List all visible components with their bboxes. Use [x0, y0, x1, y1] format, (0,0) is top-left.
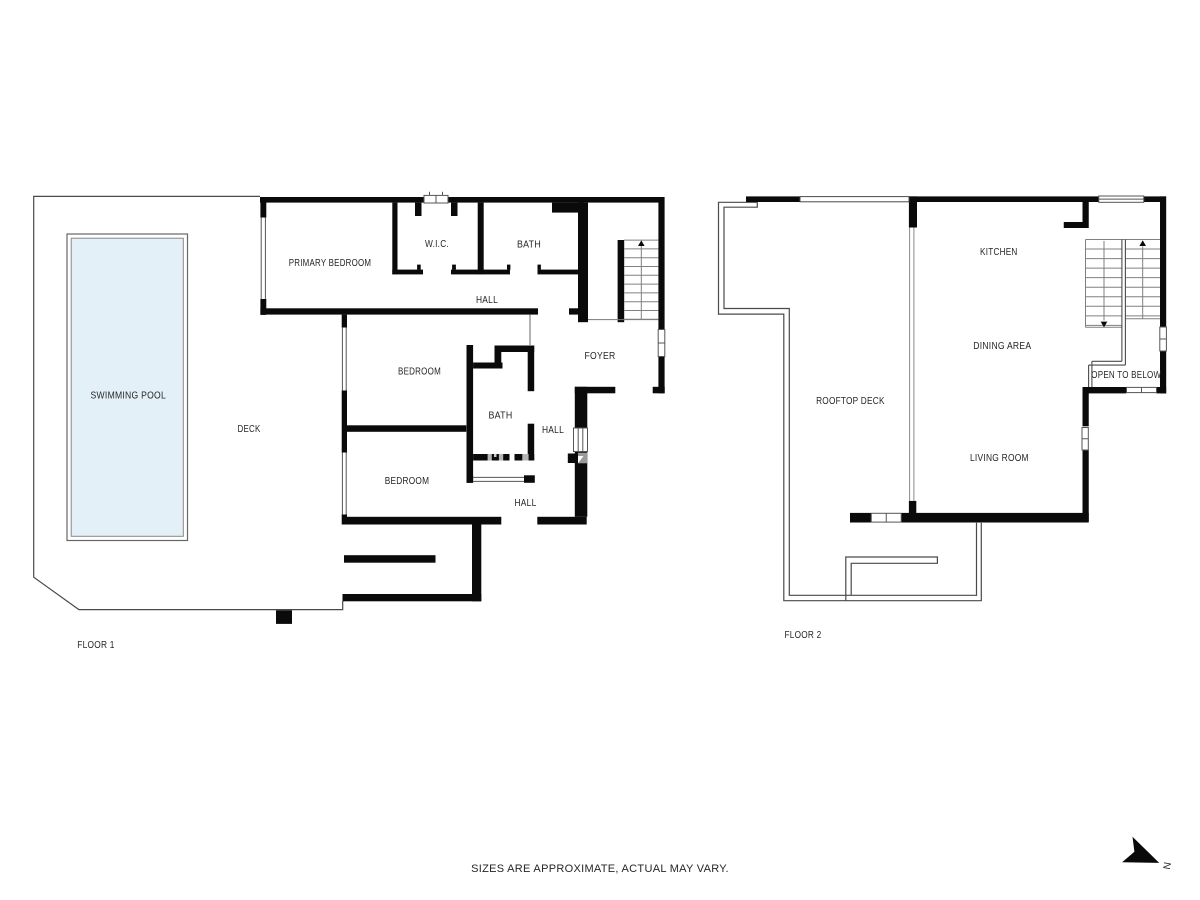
- svg-text:PRIMARY BEDROOM: PRIMARY BEDROOM: [289, 258, 372, 269]
- svg-text:LIVING ROOM: LIVING ROOM: [970, 453, 1029, 464]
- svg-text:BEDROOM: BEDROOM: [385, 476, 430, 487]
- svg-text:FOYER: FOYER: [585, 351, 616, 362]
- svg-text:OPEN TO BELOW: OPEN TO BELOW: [1091, 370, 1161, 381]
- svg-text:HALL: HALL: [515, 498, 537, 509]
- svg-text:FLOOR 2: FLOOR 2: [785, 630, 822, 641]
- svg-text:SIZES ARE APPROXIMATE, ACTUAL: SIZES ARE APPROXIMATE, ACTUAL MAY VARY.: [471, 863, 729, 875]
- svg-text:FLOOR 1: FLOOR 1: [77, 640, 114, 651]
- svg-text:KITCHEN: KITCHEN: [980, 247, 1018, 258]
- svg-text:BEDROOM: BEDROOM: [398, 367, 441, 378]
- svg-text:DECK: DECK: [238, 424, 261, 435]
- svg-text:BATH: BATH: [489, 411, 513, 422]
- svg-text:HALL: HALL: [476, 295, 498, 306]
- svg-text:W.I.C.: W.I.C.: [425, 239, 449, 250]
- svg-text:ROOFTOP DECK: ROOFTOP DECK: [816, 396, 885, 407]
- svg-text:BATH: BATH: [517, 240, 541, 251]
- svg-text:DINING AREA: DINING AREA: [973, 341, 1031, 352]
- svg-text:HALL: HALL: [542, 425, 564, 436]
- svg-text:SWIMMING POOL: SWIMMING POOL: [91, 391, 167, 402]
